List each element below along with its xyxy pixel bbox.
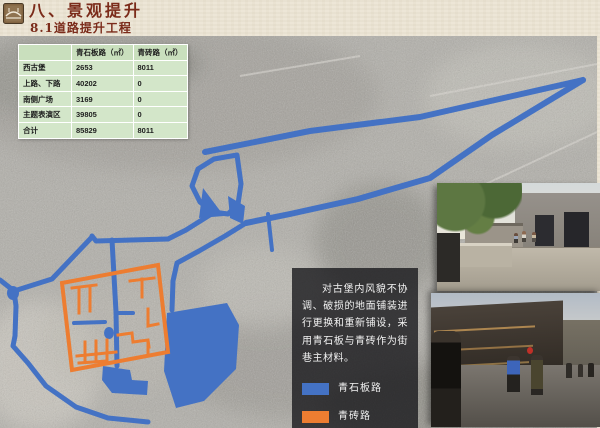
photo-pedestrian-blue-shirt: [507, 356, 520, 392]
page-title: 八、景观提升: [29, 1, 143, 21]
page-subtitle: 8.1道路提升工程: [30, 21, 143, 36]
photo-trees: [437, 183, 522, 237]
stone-value: 40202: [72, 76, 134, 92]
photo-paved-street-day: [437, 183, 600, 291]
photo-pedestrian: [578, 364, 583, 377]
brick-value: 8011: [133, 122, 187, 138]
photo-pedestrian: [532, 232, 536, 242]
row-label: 合计: [19, 122, 72, 138]
table-header-blank: [19, 45, 72, 61]
slide-road-improvement: 八、景观提升 8.1道路提升工程 青石板路（㎡） 青砖路（㎡） 西古堡 2653…: [0, 0, 600, 428]
legend-label: 青砖路: [338, 408, 371, 425]
stone-value: 85829: [72, 122, 134, 138]
photo-pedestrian: [588, 363, 594, 377]
map-legend: 青石板路 青砖路: [302, 380, 408, 425]
stone-value: 3169: [72, 91, 134, 107]
table-header-brick: 青砖路（㎡）: [133, 45, 187, 61]
photo-window: [564, 212, 588, 248]
row-label: 西古堡: [19, 60, 72, 76]
note-text: 对古堡内风貌不协调、破损的地面铺装进行更换和重新铺设，采用青石板与青砖作为街巷主…: [302, 281, 408, 367]
table-row: 主题表演区 39805 0: [19, 107, 188, 123]
brick-value: 0: [133, 76, 187, 92]
stone-value: 39805: [72, 107, 134, 123]
table-row-total: 合计 85829 8011: [19, 122, 188, 138]
brick-color-swatch: [302, 411, 329, 423]
table-header-row: 青石板路（㎡） 青砖路（㎡）: [19, 45, 188, 61]
row-label: 南侧广场: [19, 91, 72, 107]
legend-item-brick: 青砖路: [302, 408, 408, 425]
photo-pedestrian: [514, 233, 518, 243]
photo-window: [535, 215, 555, 245]
stone-value: 2653: [72, 60, 134, 76]
note-box: 对古堡内风貌不协调、破损的地面铺装进行更换和重新铺设，采用青石板与青砖作为街巷主…: [292, 268, 418, 428]
photo-dark-kiosk: [437, 233, 460, 283]
brick-value: 0: [133, 107, 187, 123]
photo-red-lantern: [527, 347, 533, 354]
legend-label: 青石板路: [338, 380, 382, 397]
brick-value: 0: [133, 91, 187, 107]
photo-pedestrian: [522, 231, 526, 242]
table-row: 西古堡 2653 8011: [19, 60, 188, 76]
bridge-stamp-logo-icon: [3, 3, 24, 24]
photo-pedestrian-dress: [531, 355, 543, 395]
table-header-stone: 青石板路（㎡）: [72, 45, 134, 61]
header: 八、景观提升 8.1道路提升工程: [29, 1, 143, 36]
table-row: 上路、下路 40202 0: [19, 76, 188, 92]
legend-item-bluestone: 青石板路: [302, 380, 408, 397]
photo-historic-street-dusk: [431, 293, 600, 427]
brick-value: 8011: [133, 60, 187, 76]
table-row: 南侧广场 3169 0: [19, 91, 188, 107]
photo-foreground-pedestrian: [431, 331, 461, 427]
bluestone-color-swatch: [302, 383, 329, 395]
photo-pedestrian: [566, 363, 572, 378]
paving-area-table: 青石板路（㎡） 青砖路（㎡） 西古堡 2653 8011 上路、下路 40202…: [18, 44, 188, 139]
row-label: 上路、下路: [19, 76, 72, 92]
row-label: 主题表演区: [19, 107, 72, 123]
